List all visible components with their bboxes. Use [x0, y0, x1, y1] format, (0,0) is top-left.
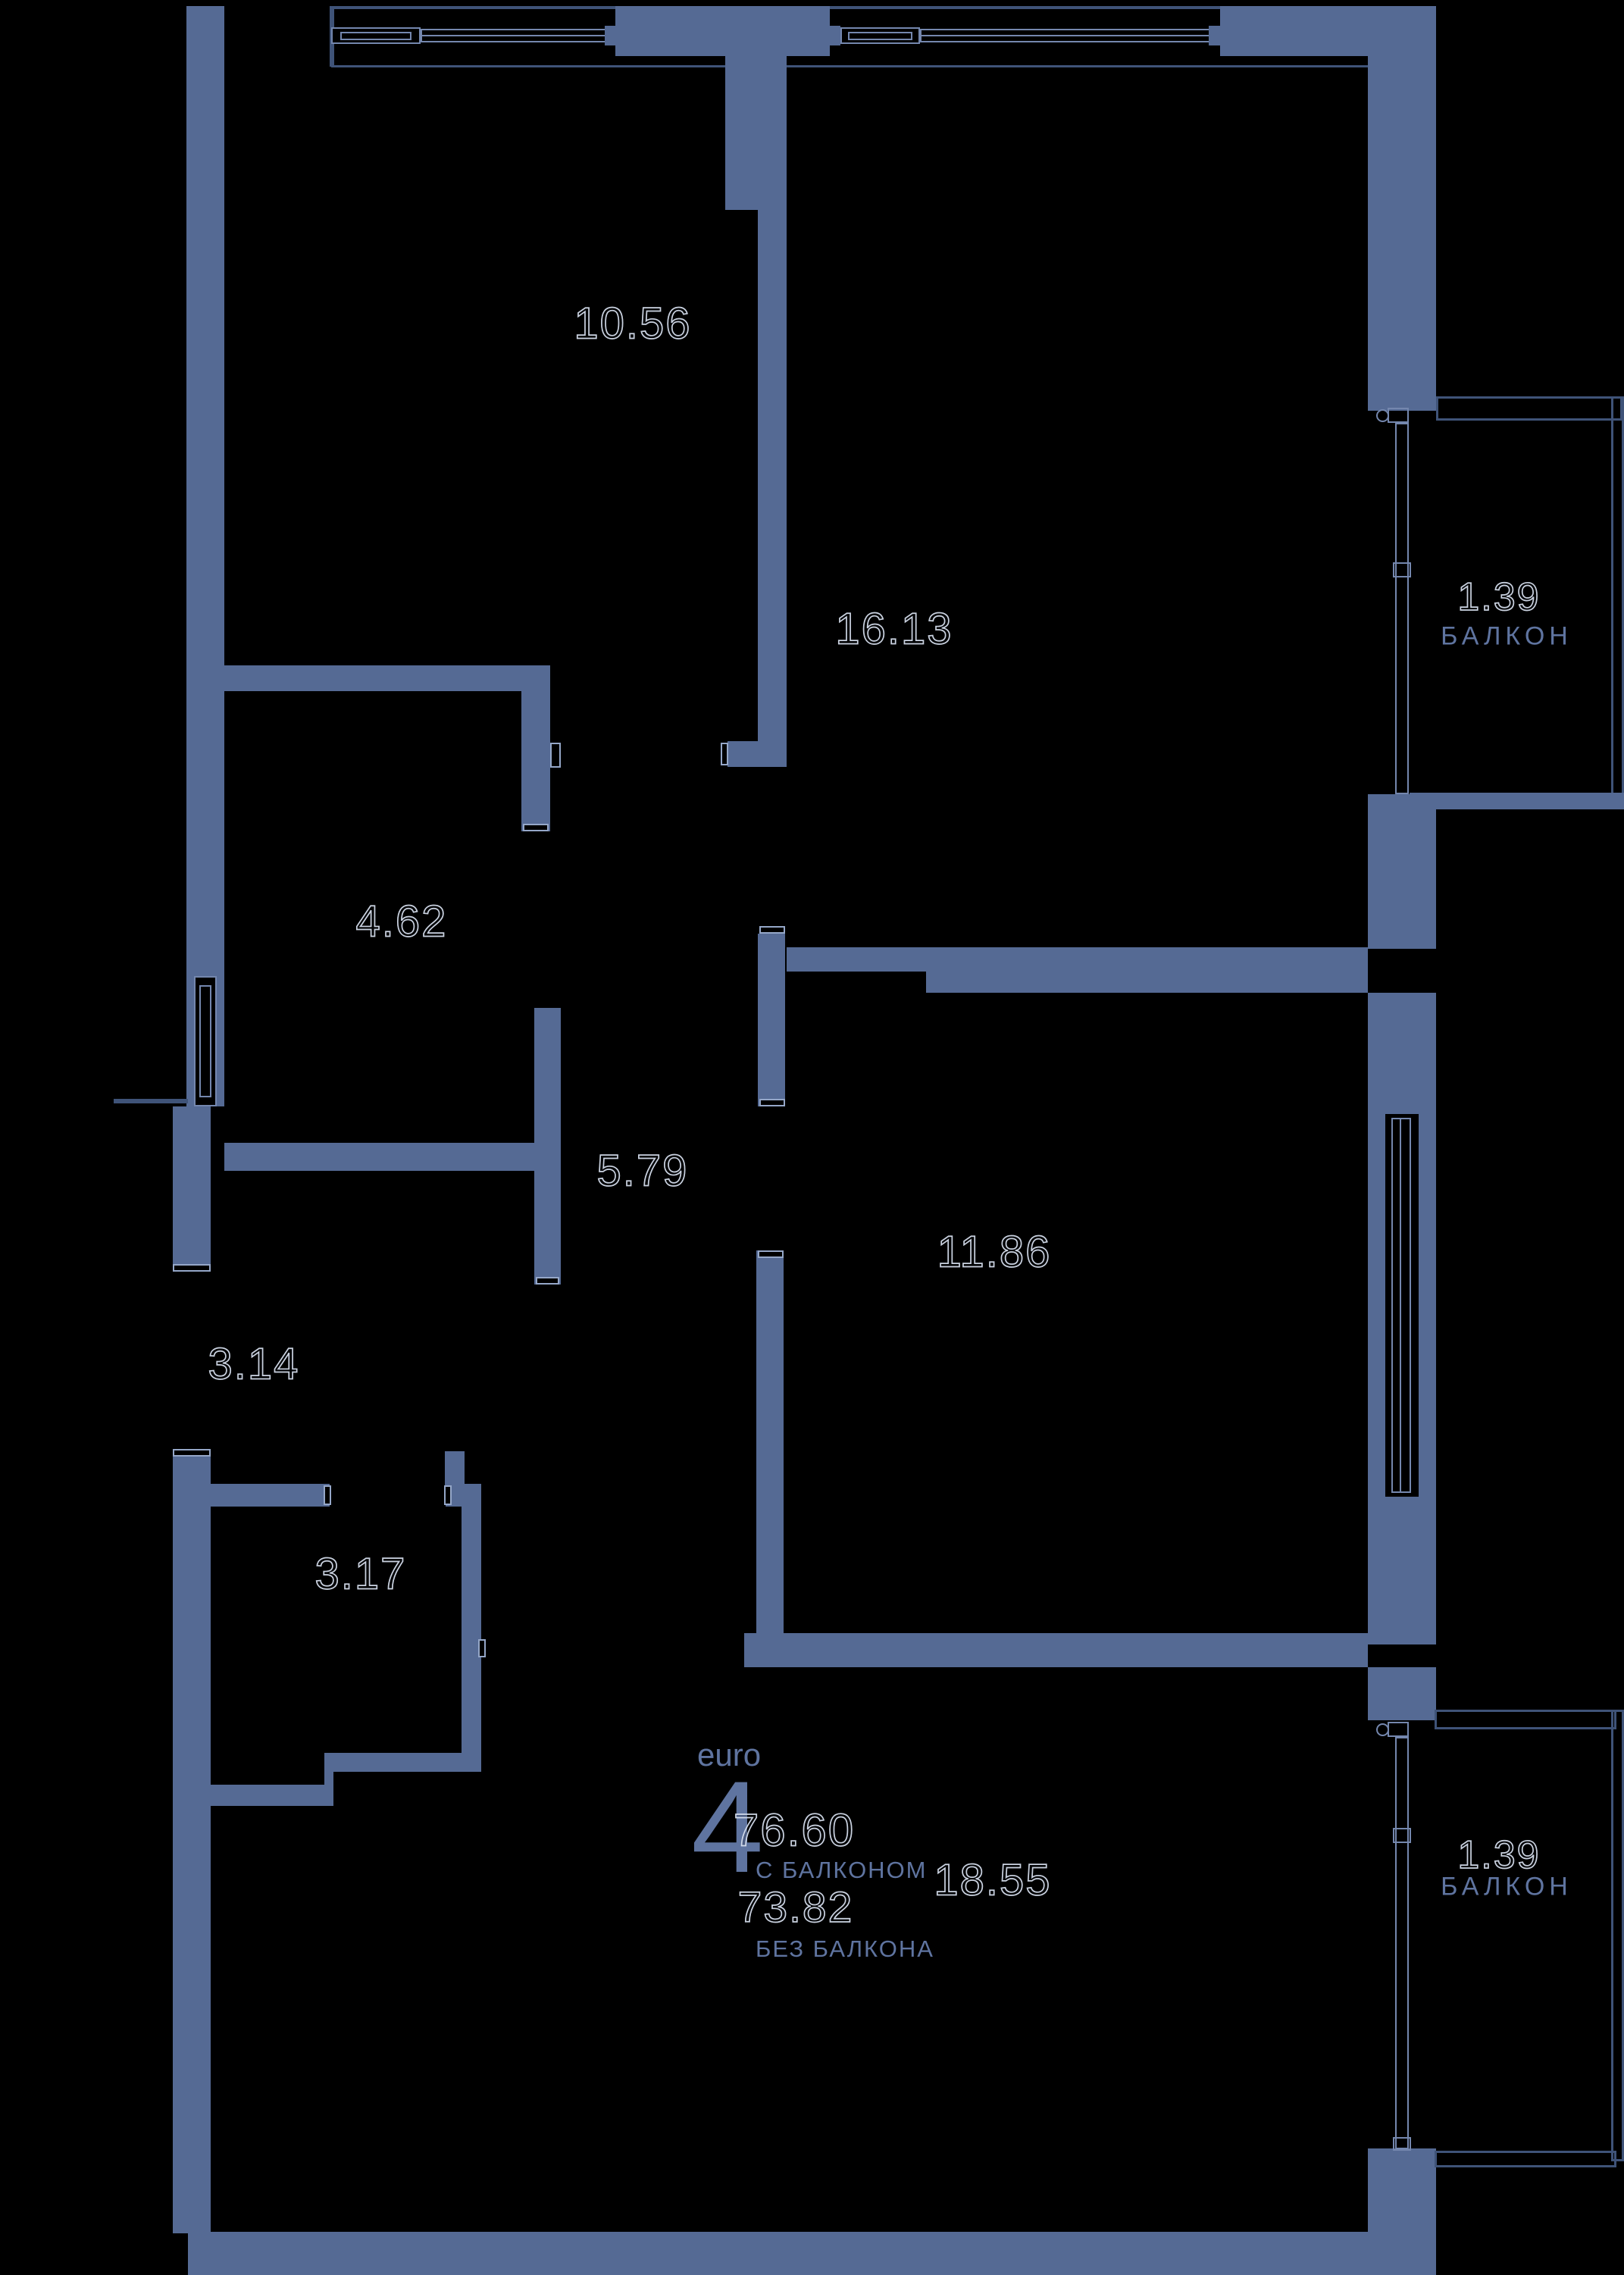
wall-corridor-11-86 — [758, 934, 785, 1106]
balcony-2-glazing-joint — [1393, 1828, 1411, 1843]
window-left-wall-inner — [199, 985, 211, 1097]
window-right-wall-glass-line — [1400, 1119, 1401, 1491]
balcony-door-frame — [1388, 408, 1409, 423]
wall-top-middle-block — [615, 6, 830, 56]
balcony-1-top-rail — [1436, 396, 1622, 421]
wall-3-17-stub — [445, 1451, 465, 1485]
door-jamb — [550, 743, 561, 768]
wall-16-13-bottom-upper — [787, 947, 1368, 972]
total-area-without-balcony: 73.82 — [738, 1882, 854, 1932]
door-jamb-entrance — [173, 1449, 211, 1457]
window-top-left-glass-line — [422, 35, 605, 36]
room-area-label-5-79: 5.79 — [597, 1146, 689, 1197]
wall-4-62-corridor-lower — [534, 1008, 561, 1285]
balcony-1-glazing — [1395, 423, 1409, 794]
room-area-label-4-62: 4.62 — [356, 897, 448, 947]
door-jamb — [758, 1250, 784, 1258]
wall-right-upper — [1368, 55, 1436, 411]
wall-3-17-bottom-left — [211, 1785, 333, 1806]
wall-16-13-bottom-lower — [926, 972, 1368, 993]
balcony-1-bottom-slab — [1410, 793, 1624, 809]
window-top-right-casement-inner — [848, 32, 912, 40]
balcony-2-glazing-endcap — [1393, 2137, 1411, 2151]
wall-corridor-top — [728, 741, 787, 767]
room-area-label-3-14: 3.14 — [208, 1339, 300, 1390]
wall-4-62-corridor-upper — [521, 665, 550, 831]
door-jamb — [759, 926, 785, 934]
wall-left-lower — [173, 1449, 211, 2233]
room-area-label-18-55: 18.55 — [934, 1855, 1051, 1906]
wall-top-right-block — [1220, 6, 1436, 56]
door-jamb — [324, 1485, 331, 1505]
balcony-2-glazing — [1395, 1737, 1409, 2149]
wall-left-ledge-line — [114, 1099, 188, 1103]
balcony-2-top-rail — [1435, 1710, 1616, 1729]
door-jamb — [444, 1485, 452, 1505]
wall-3-17-right — [462, 1484, 481, 1772]
floor-plan: 10.56 16.13 4.62 5.79 3.14 3.17 11.86 18… — [0, 0, 1624, 2275]
wall-bottom — [188, 2232, 1368, 2275]
balcony-1-label: БАЛКОН — [1441, 622, 1572, 652]
window-top-left-endcap — [605, 26, 617, 45]
wall-11-86-bottom — [744, 1633, 1368, 1667]
balcony-1-area-label: 1.39 — [1457, 574, 1540, 620]
total-area-with-balcony: 76.60 — [734, 1804, 855, 1857]
window-top-left-casement-inner — [340, 32, 411, 40]
door-jamb — [721, 743, 728, 765]
door-jamb — [523, 824, 549, 831]
balcony-2-right-rail — [1611, 1710, 1624, 2161]
balcony-1-right-rail — [1611, 396, 1624, 800]
room-area-label-16-13: 16.13 — [835, 604, 953, 655]
door-jamb — [759, 1099, 785, 1106]
wall-left-upper — [186, 6, 224, 1106]
wall-divider-10-56-16-13 — [758, 55, 787, 743]
wall-3-17-bottom-right — [332, 1753, 481, 1772]
balcony-2-bottom-rail — [1435, 2151, 1616, 2167]
door-jamb — [536, 1277, 559, 1285]
door-jamb — [478, 1639, 486, 1657]
door-jamb-entrance — [173, 1264, 211, 1272]
room-area-label-10-56: 10.56 — [574, 299, 691, 349]
wall-left-middle — [173, 1106, 211, 1272]
wall-bottom-right-corner — [1368, 2148, 1436, 2275]
balcony-2-label: БАЛКОН — [1441, 1873, 1572, 1902]
wall-4-62-bottom — [224, 1143, 538, 1171]
wall-3-17-top-left — [211, 1484, 330, 1507]
with-balcony-label: С БАЛКОНОМ — [756, 1857, 928, 1884]
wall-10-56-4-62 — [224, 665, 543, 691]
without-balcony-label: БЕЗ БАЛКОНА — [756, 1935, 934, 1963]
window-top-right-glass-line — [922, 35, 1209, 36]
wall-corridor-18-55 — [756, 1250, 784, 1652]
balcony-2-area-label: 1.39 — [1457, 1832, 1540, 1878]
wall-right-mid-1 — [1368, 794, 1436, 949]
window-right-wall — [1391, 1118, 1411, 1493]
room-area-label-11-86: 11.86 — [937, 1227, 1052, 1278]
balcony-door-frame — [1388, 1722, 1409, 1737]
wall-right-lower — [1368, 1667, 1436, 1720]
room-area-label-3-17: 3.17 — [315, 1549, 407, 1600]
window-top-right-startcap — [828, 26, 840, 45]
window-top-right-endcap — [1209, 26, 1221, 45]
balcony-1-glazing-joint — [1393, 562, 1411, 577]
wall-top-inner-line — [331, 65, 1435, 67]
